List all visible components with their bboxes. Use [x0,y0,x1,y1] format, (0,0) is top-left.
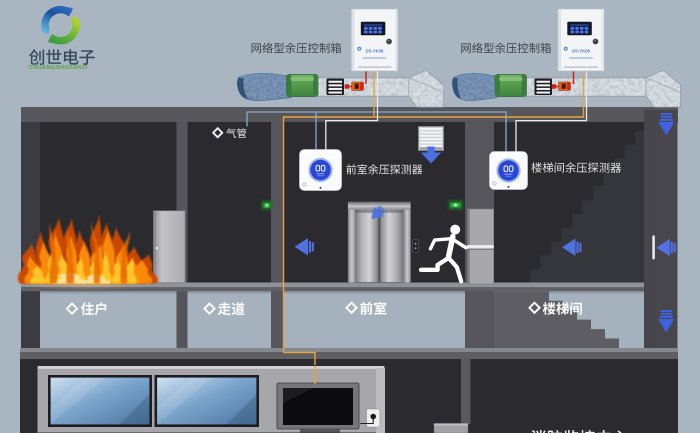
svg-text:DS-YK08: DS-YK08 [366,48,384,53]
svg-text:CHUANGSHIDIANZI: CHUANGSHIDIANZI [29,65,88,71]
svg-text:DS-YK08: DS-YK08 [572,48,590,53]
